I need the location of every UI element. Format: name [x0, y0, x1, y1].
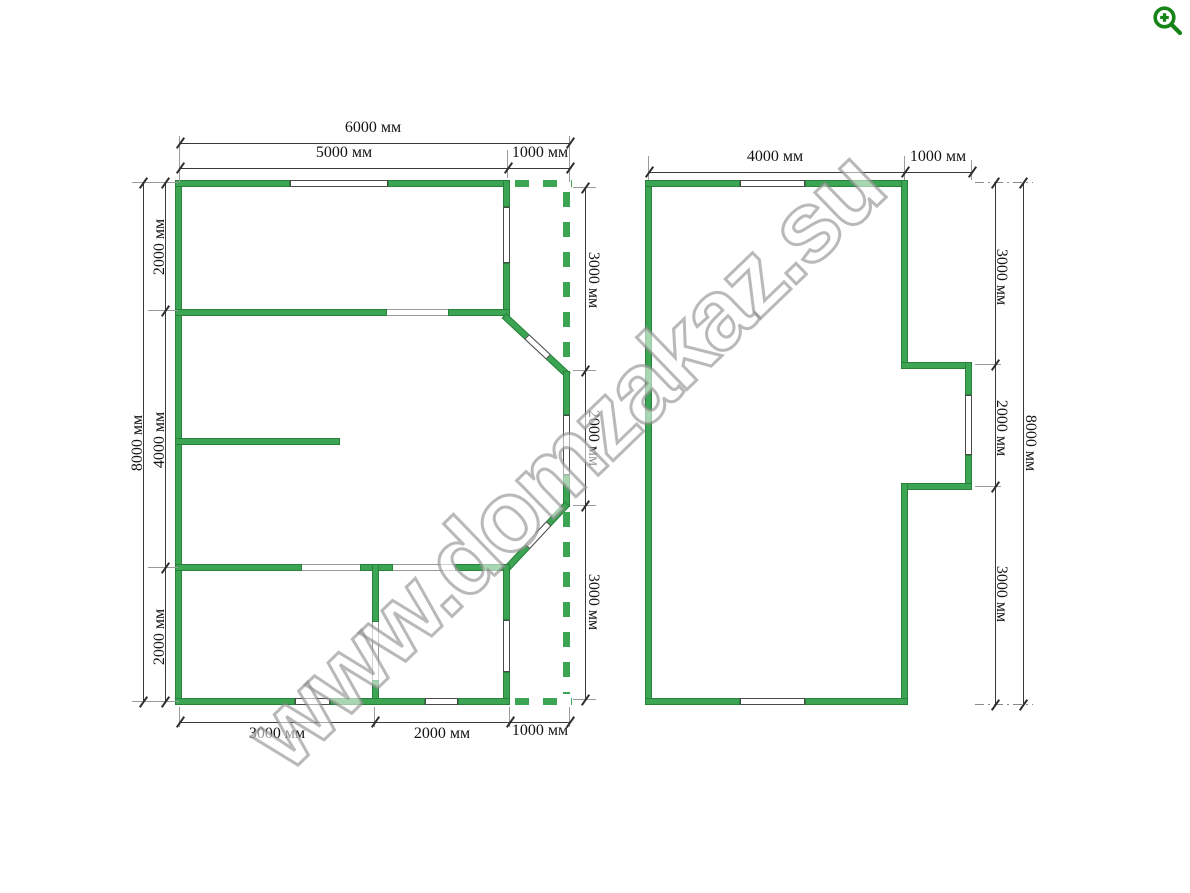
floor-plan-canvas: 6000 мм 5000 мм 1000 мм 8000 мм 2000 мм …	[0, 0, 1190, 893]
dim-label-r-right-total: 8000 мм	[1020, 398, 1040, 488]
dim-label-r-right-bottom: 3000 мм	[991, 549, 1011, 639]
dim-label-left-total: 8000 мм	[128, 398, 148, 488]
dim-label-left-mid: 4000 мм	[150, 395, 170, 485]
dim-label-bottom-mid: 2000 мм	[397, 724, 487, 744]
dim-label-top-right: 1000 мм	[495, 143, 585, 163]
zoom-in-icon[interactable]	[1150, 4, 1186, 40]
dim-label-left-top: 2000 мм	[150, 202, 170, 292]
dim-label-bottom-right: 1000 мм	[495, 721, 585, 741]
magnifier-plus-icon	[1150, 4, 1186, 40]
dim-label-left-bottom: 2000 мм	[150, 592, 170, 682]
dim-label-right-top: 3000 мм	[583, 235, 603, 325]
dim-label-top-main: 5000 мм	[299, 143, 389, 163]
dim-label-top-total: 6000 мм	[328, 118, 418, 138]
dim-label-r-right-mid: 2000 мм	[991, 383, 1011, 473]
dim-label-right-bottom: 3000 мм	[583, 557, 603, 647]
dim-label-r-right-top: 3000 мм	[991, 232, 1011, 322]
